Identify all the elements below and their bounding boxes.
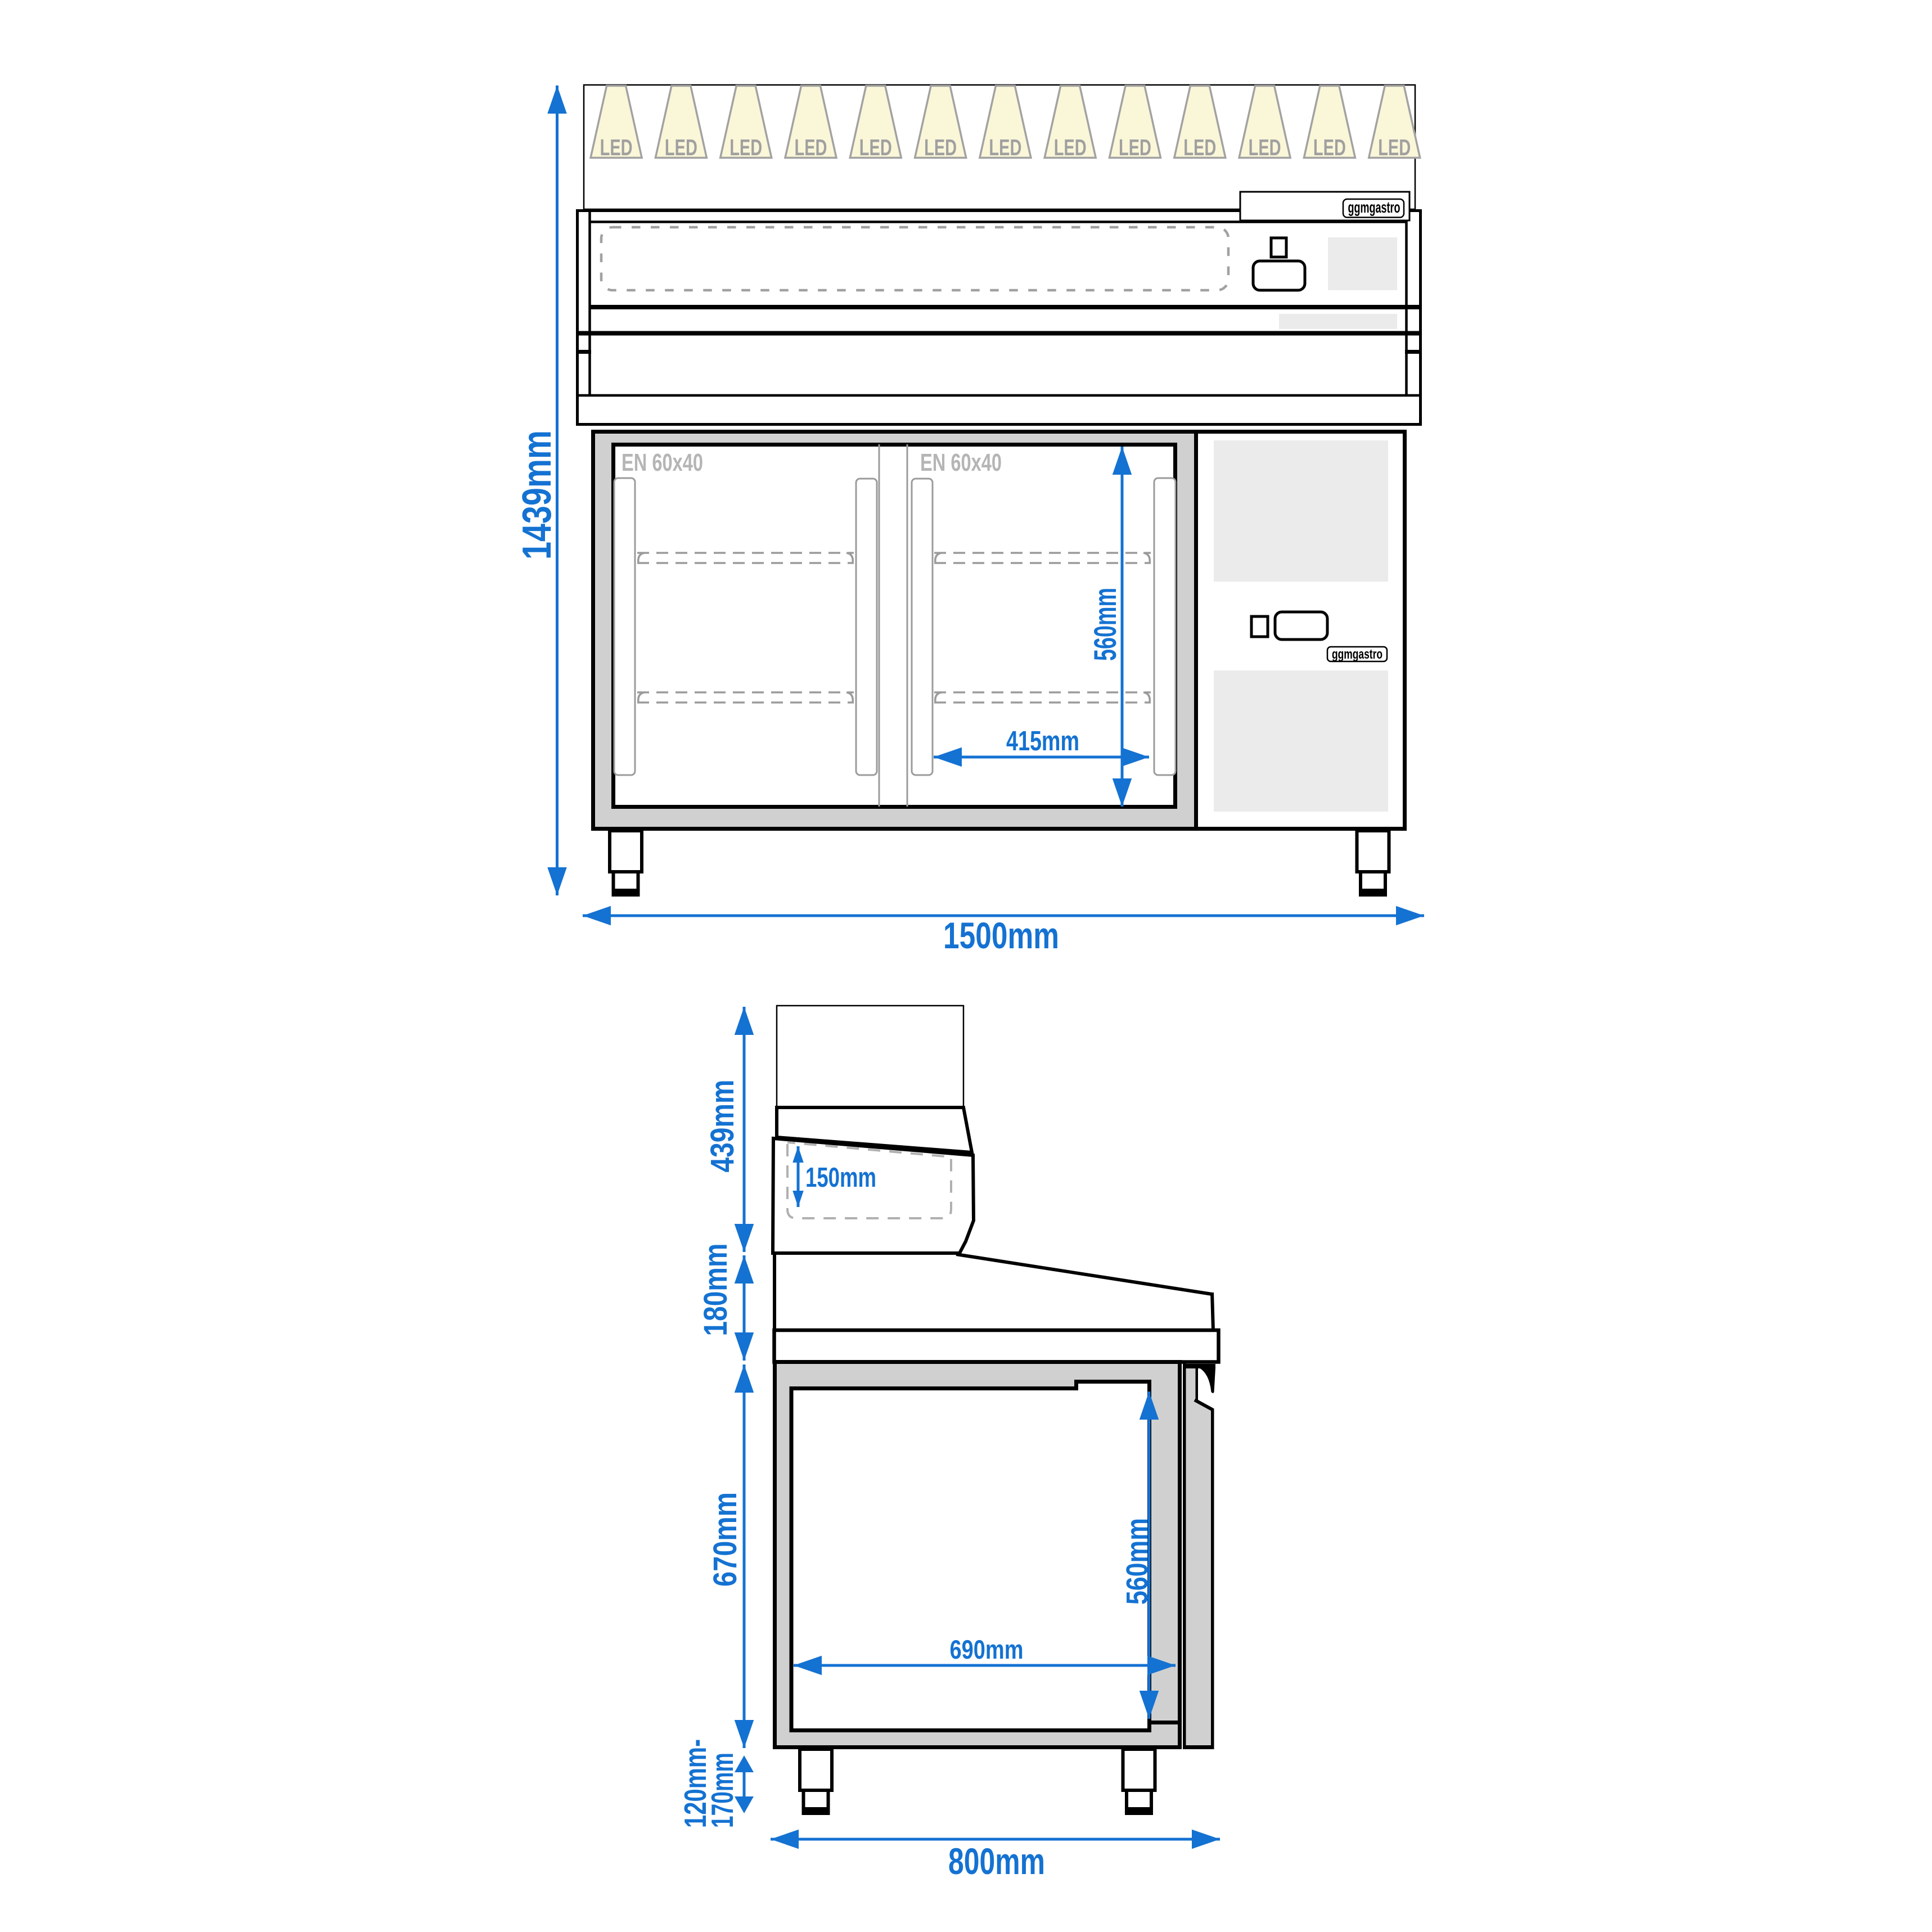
svg-text:ggmgastro: ggmgastro xyxy=(1332,647,1382,662)
svg-text:439mm: 439mm xyxy=(704,1080,741,1173)
svg-text:ggmgastro: ggmgastro xyxy=(1348,199,1400,216)
svg-text:670mm: 670mm xyxy=(707,1492,744,1587)
svg-text:EN 60x40: EN 60x40 xyxy=(920,449,1002,476)
svg-text:415mm: 415mm xyxy=(1006,726,1079,756)
svg-text:800mm: 800mm xyxy=(948,1840,1045,1882)
svg-text:560mm: 560mm xyxy=(1087,588,1123,661)
svg-text:170mm: 170mm xyxy=(705,1753,740,1828)
svg-text:150mm: 150mm xyxy=(805,1163,876,1193)
svg-text:1439mm: 1439mm xyxy=(515,430,560,560)
svg-text:560mm: 560mm xyxy=(1120,1518,1154,1605)
svg-text:1500mm: 1500mm xyxy=(943,915,1059,956)
svg-text:EN 60x40: EN 60x40 xyxy=(622,449,703,476)
svg-text:690mm: 690mm xyxy=(950,1634,1024,1664)
svg-text:180mm: 180mm xyxy=(697,1244,734,1336)
